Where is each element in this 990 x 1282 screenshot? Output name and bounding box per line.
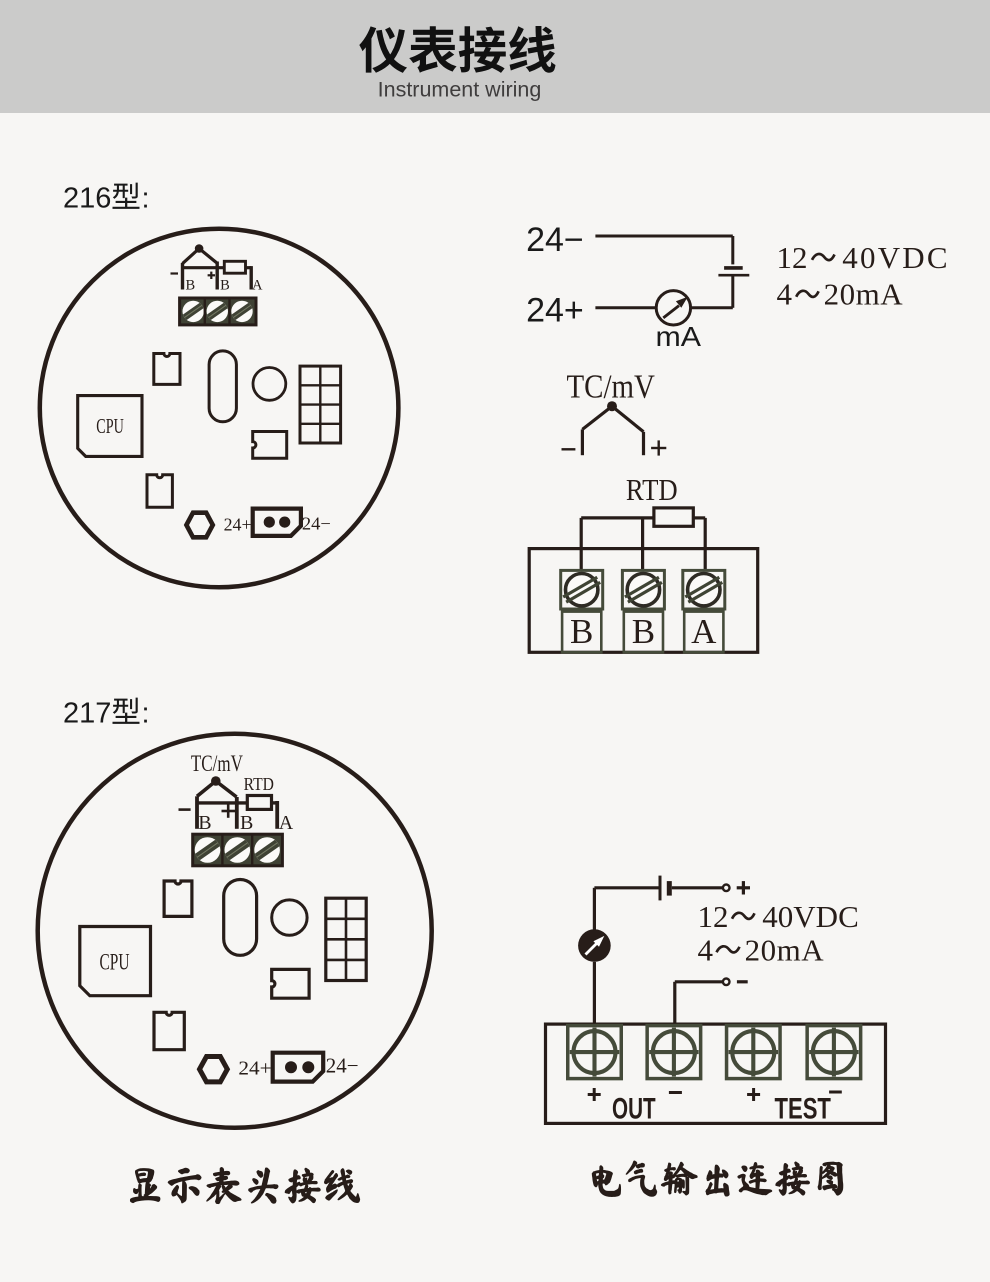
svg-text:217: 217 (63, 698, 111, 730)
svg-text:B: B (632, 612, 655, 651)
svg-text::: : (142, 698, 150, 730)
svg-text:CPU: CPU (100, 950, 130, 975)
svg-text:RTD: RTD (626, 473, 678, 507)
svg-text:B: B (220, 278, 230, 294)
svg-text:mA: mA (656, 321, 702, 352)
svg-text:20mA: 20mA (824, 277, 904, 312)
svg-text:B: B (185, 278, 195, 294)
svg-text:TEST: TEST (775, 1093, 831, 1126)
svg-text:A: A (691, 612, 717, 651)
svg-text:20mA: 20mA (745, 933, 825, 968)
svg-text:24+: 24+ (224, 515, 252, 535)
svg-text:4: 4 (698, 933, 714, 968)
svg-text:OUT: OUT (612, 1093, 656, 1126)
svg-text:24−: 24− (326, 1054, 359, 1078)
svg-text::: : (142, 183, 150, 215)
svg-text:TC/mV: TC/mV (191, 751, 243, 776)
svg-text:12: 12 (777, 240, 808, 275)
svg-text:24−: 24− (302, 514, 331, 534)
svg-text:216: 216 (63, 183, 111, 215)
svg-text:24+: 24+ (526, 291, 584, 329)
svg-text:RTD: RTD (244, 774, 274, 794)
svg-text:12: 12 (698, 899, 729, 934)
svg-text:Instrument wiring: Instrument wiring (378, 78, 542, 102)
svg-text:A: A (252, 278, 263, 294)
svg-text:A: A (279, 812, 294, 834)
svg-text:CPU: CPU (96, 414, 124, 438)
svg-text:B: B (240, 812, 253, 834)
svg-text:4: 4 (777, 277, 793, 312)
svg-text:40VDC: 40VDC (762, 899, 858, 934)
svg-text:TC/mV: TC/mV (567, 369, 656, 406)
svg-text:24+: 24+ (238, 1058, 271, 1080)
svg-text:40VDC: 40VDC (842, 240, 949, 275)
svg-text:B: B (198, 812, 211, 834)
svg-text:24−: 24− (526, 221, 584, 259)
svg-text:B: B (570, 612, 593, 651)
